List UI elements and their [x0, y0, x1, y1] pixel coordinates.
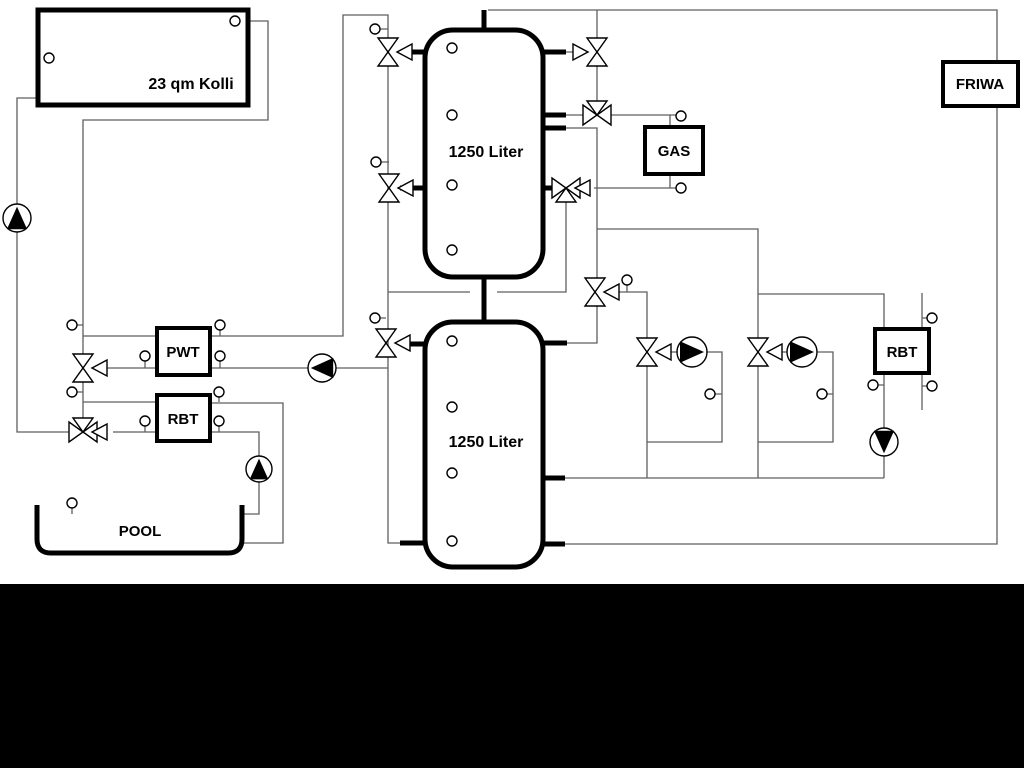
temperature-sensor-icon — [622, 275, 632, 285]
temperature-sensor-icon — [705, 389, 715, 399]
rbt-right-label: RBT — [887, 344, 918, 361]
temperature-sensor-icon — [215, 351, 225, 361]
temperature-sensor-icon — [370, 313, 380, 323]
temperature-sensor-icon — [927, 381, 937, 391]
temperature-sensor-icon — [447, 336, 457, 346]
temperature-sensor-icon — [67, 387, 77, 397]
temperature-sensor-icon — [371, 157, 381, 167]
temperature-sensor-icon — [140, 351, 150, 361]
temperature-sensor-icon — [447, 180, 457, 190]
friwa-label: FRIWA — [956, 76, 1004, 93]
temperature-sensor-icon — [447, 245, 457, 255]
temperature-sensor-icon — [868, 380, 878, 390]
temperature-sensor-icon — [817, 389, 827, 399]
temperature-sensor-icon — [67, 320, 77, 330]
buffer-tank-bottom-label: 1250 Liter — [449, 434, 524, 451]
buffer-tank-top-label: 1250 Liter — [449, 144, 524, 161]
footer-bar — [0, 584, 1024, 768]
temperature-sensor-icon — [214, 416, 224, 426]
rbt-left-label: RBT — [168, 411, 199, 428]
temperature-sensor-icon — [447, 110, 457, 120]
temperature-sensor-icon — [140, 416, 150, 426]
hydraulic-schematic: 23 qm Kolli 1250 Liter 1250 Liter GAS FR… — [0, 0, 1024, 768]
temperature-sensor-icon — [676, 183, 686, 193]
temperature-sensor-icon — [447, 468, 457, 478]
temperature-sensor-icon — [214, 387, 224, 397]
temperature-sensor-icon — [44, 53, 54, 63]
temperature-sensor-icon — [67, 498, 77, 508]
temperature-sensor-icon — [230, 16, 240, 26]
temperature-sensor-icon — [447, 43, 457, 53]
pool-label: POOL — [119, 523, 162, 540]
temperature-sensor-icon — [370, 24, 380, 34]
temperature-sensor-icon — [676, 111, 686, 121]
gas-boiler-label: GAS — [658, 143, 691, 160]
solar-collector-label: 23 qm Kolli — [148, 76, 233, 93]
temperature-sensor-icon — [215, 320, 225, 330]
temperature-sensor-icon — [447, 402, 457, 412]
temperature-sensor-icon — [447, 536, 457, 546]
temperature-sensor-icon — [927, 313, 937, 323]
pwt-label: PWT — [166, 344, 199, 361]
